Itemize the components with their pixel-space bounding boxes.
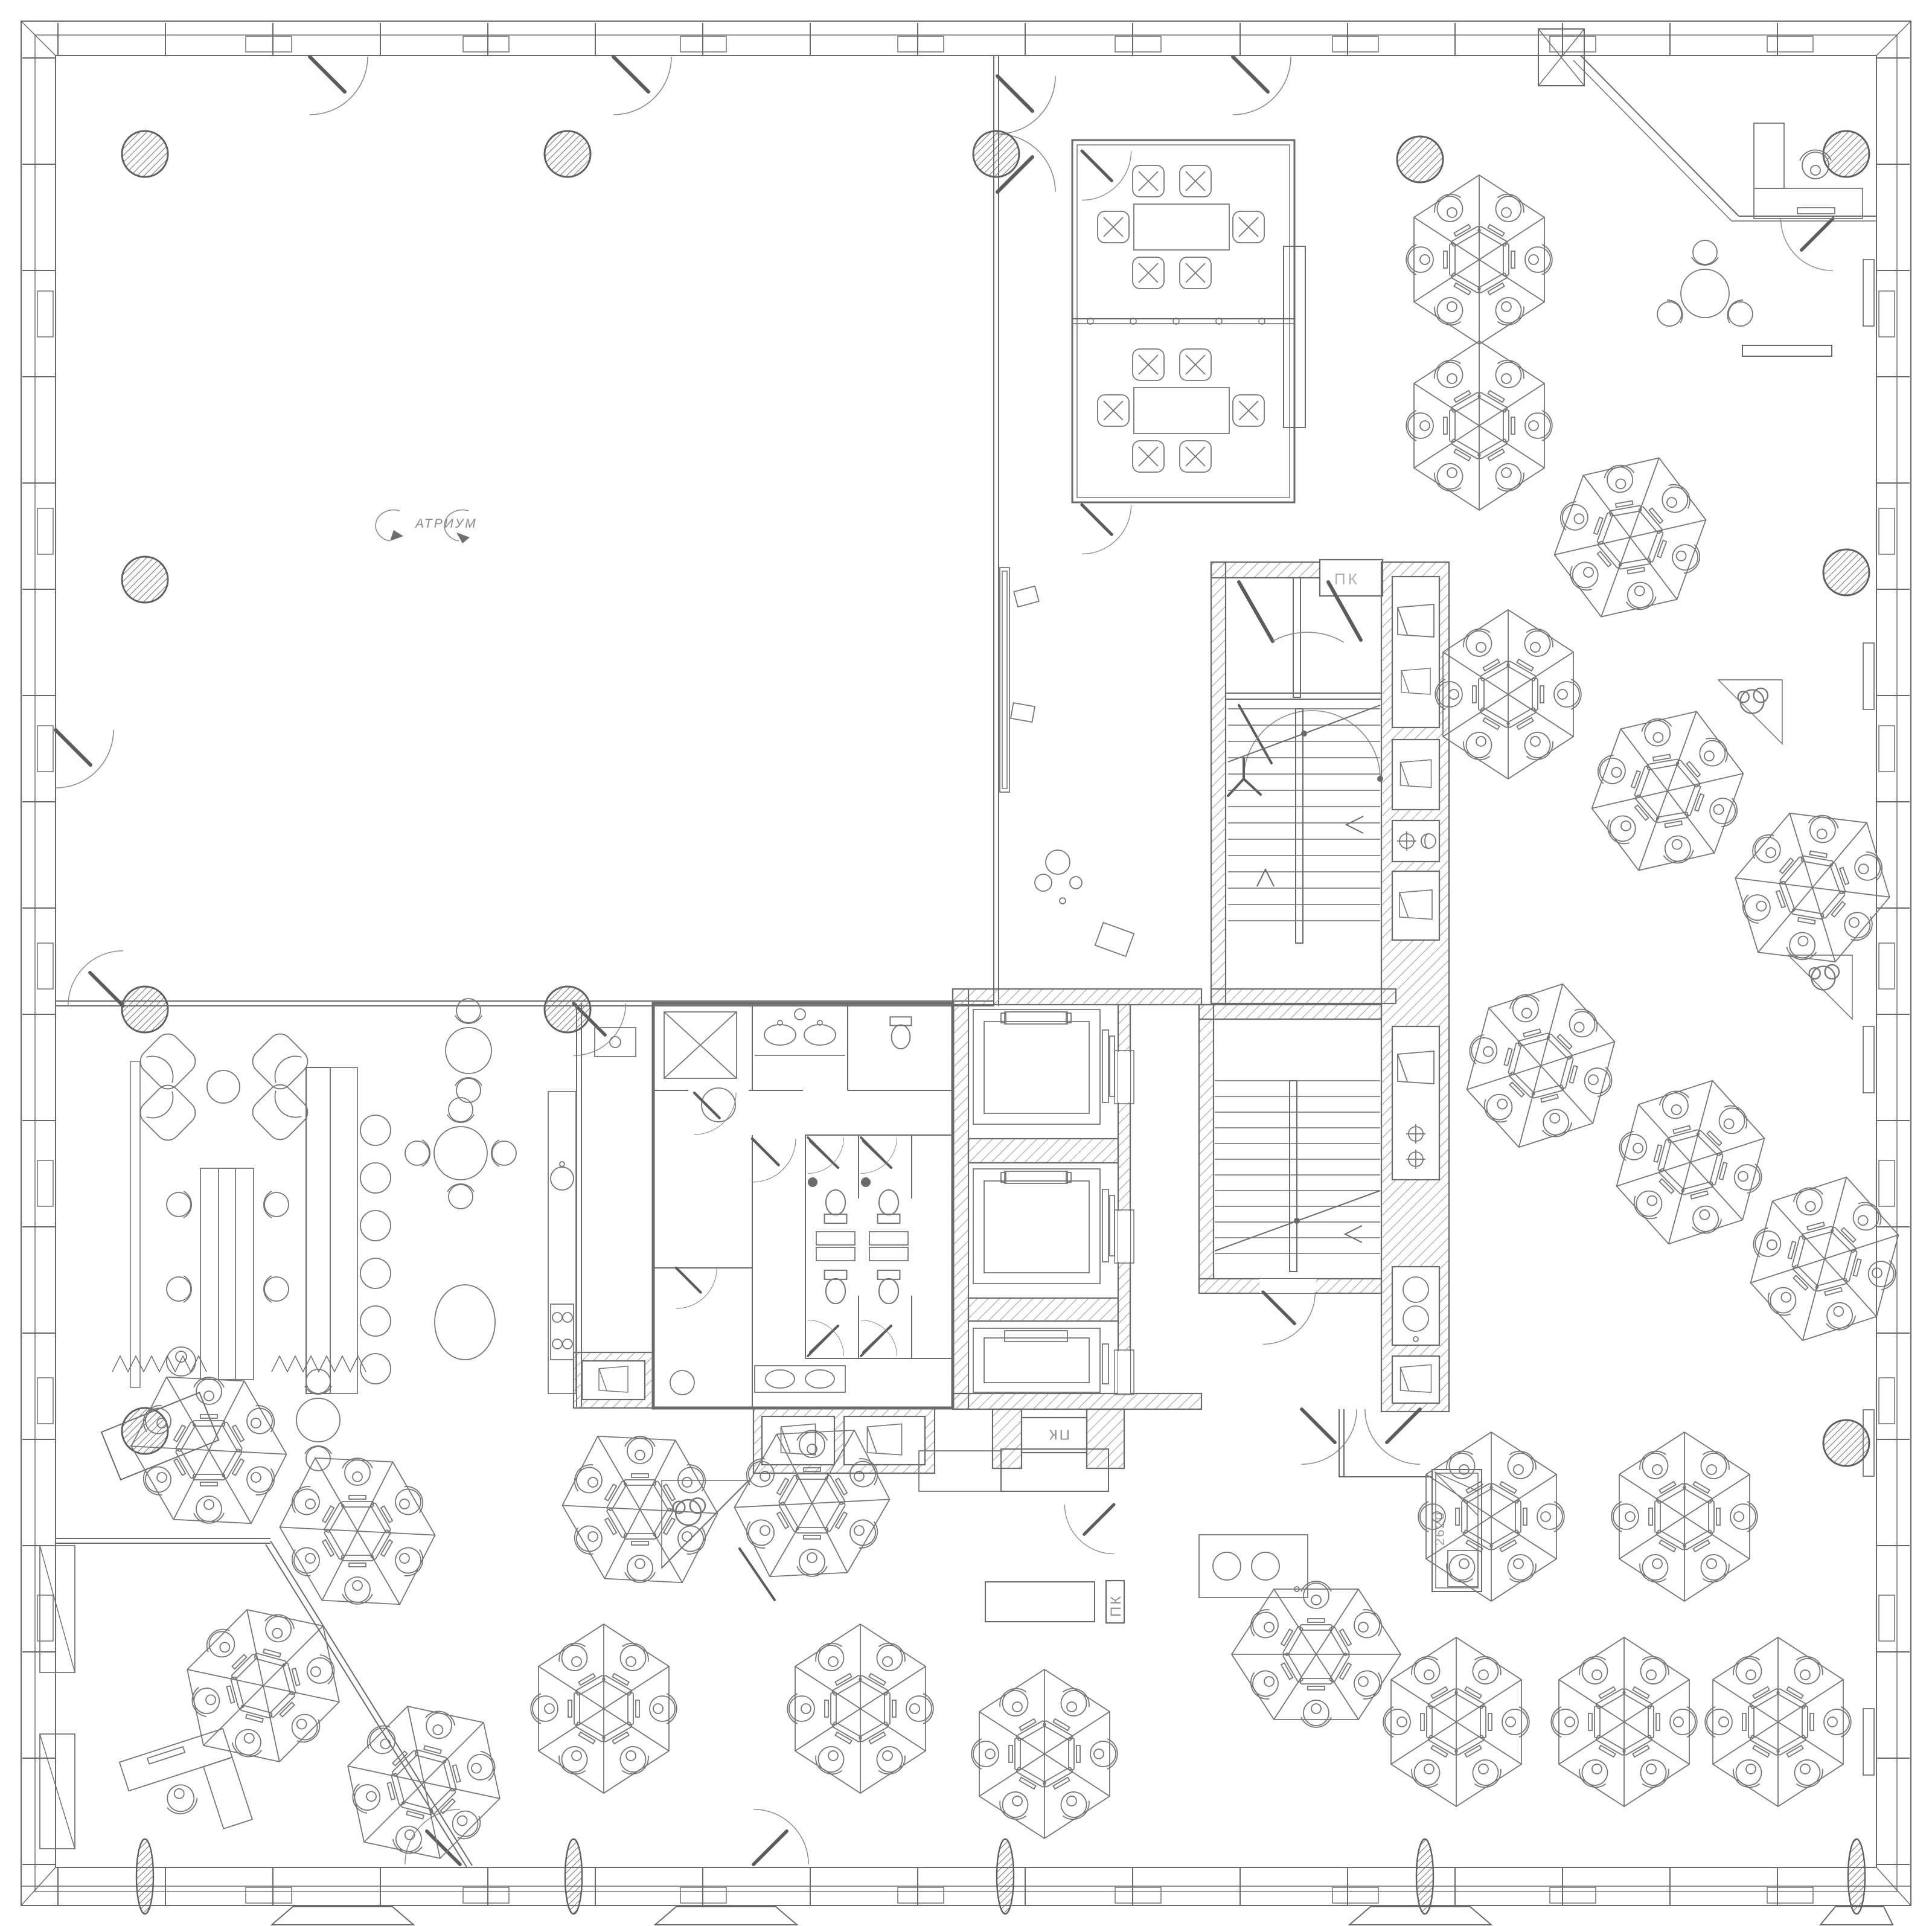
column: [122, 131, 168, 177]
column: [1823, 549, 1869, 595]
facade-column: [1416, 1839, 1433, 1914]
column: [545, 131, 590, 177]
fire-cabinet-label: ПК: [1048, 1426, 1070, 1442]
facade-column: [1848, 1839, 1865, 1914]
facade-column: [136, 1839, 153, 1914]
column: [1823, 1420, 1869, 1466]
column: [973, 131, 1019, 177]
fire-cabinet-label: ПК: [1334, 570, 1360, 588]
facade-column: [997, 1839, 1014, 1914]
column: [122, 987, 168, 1032]
floor-plan-svg: АТРИУМ: [0, 0, 1932, 1926]
fire-cabinet-label: ПК: [1108, 1595, 1124, 1617]
paper-background: [0, 0, 1932, 1926]
column: [545, 987, 590, 1032]
facade-column: [565, 1839, 582, 1914]
floor-plan-canvas: АТРИУМ: [0, 0, 1932, 1926]
column: [1823, 131, 1869, 177]
column: [122, 557, 168, 603]
column: [1397, 136, 1443, 182]
